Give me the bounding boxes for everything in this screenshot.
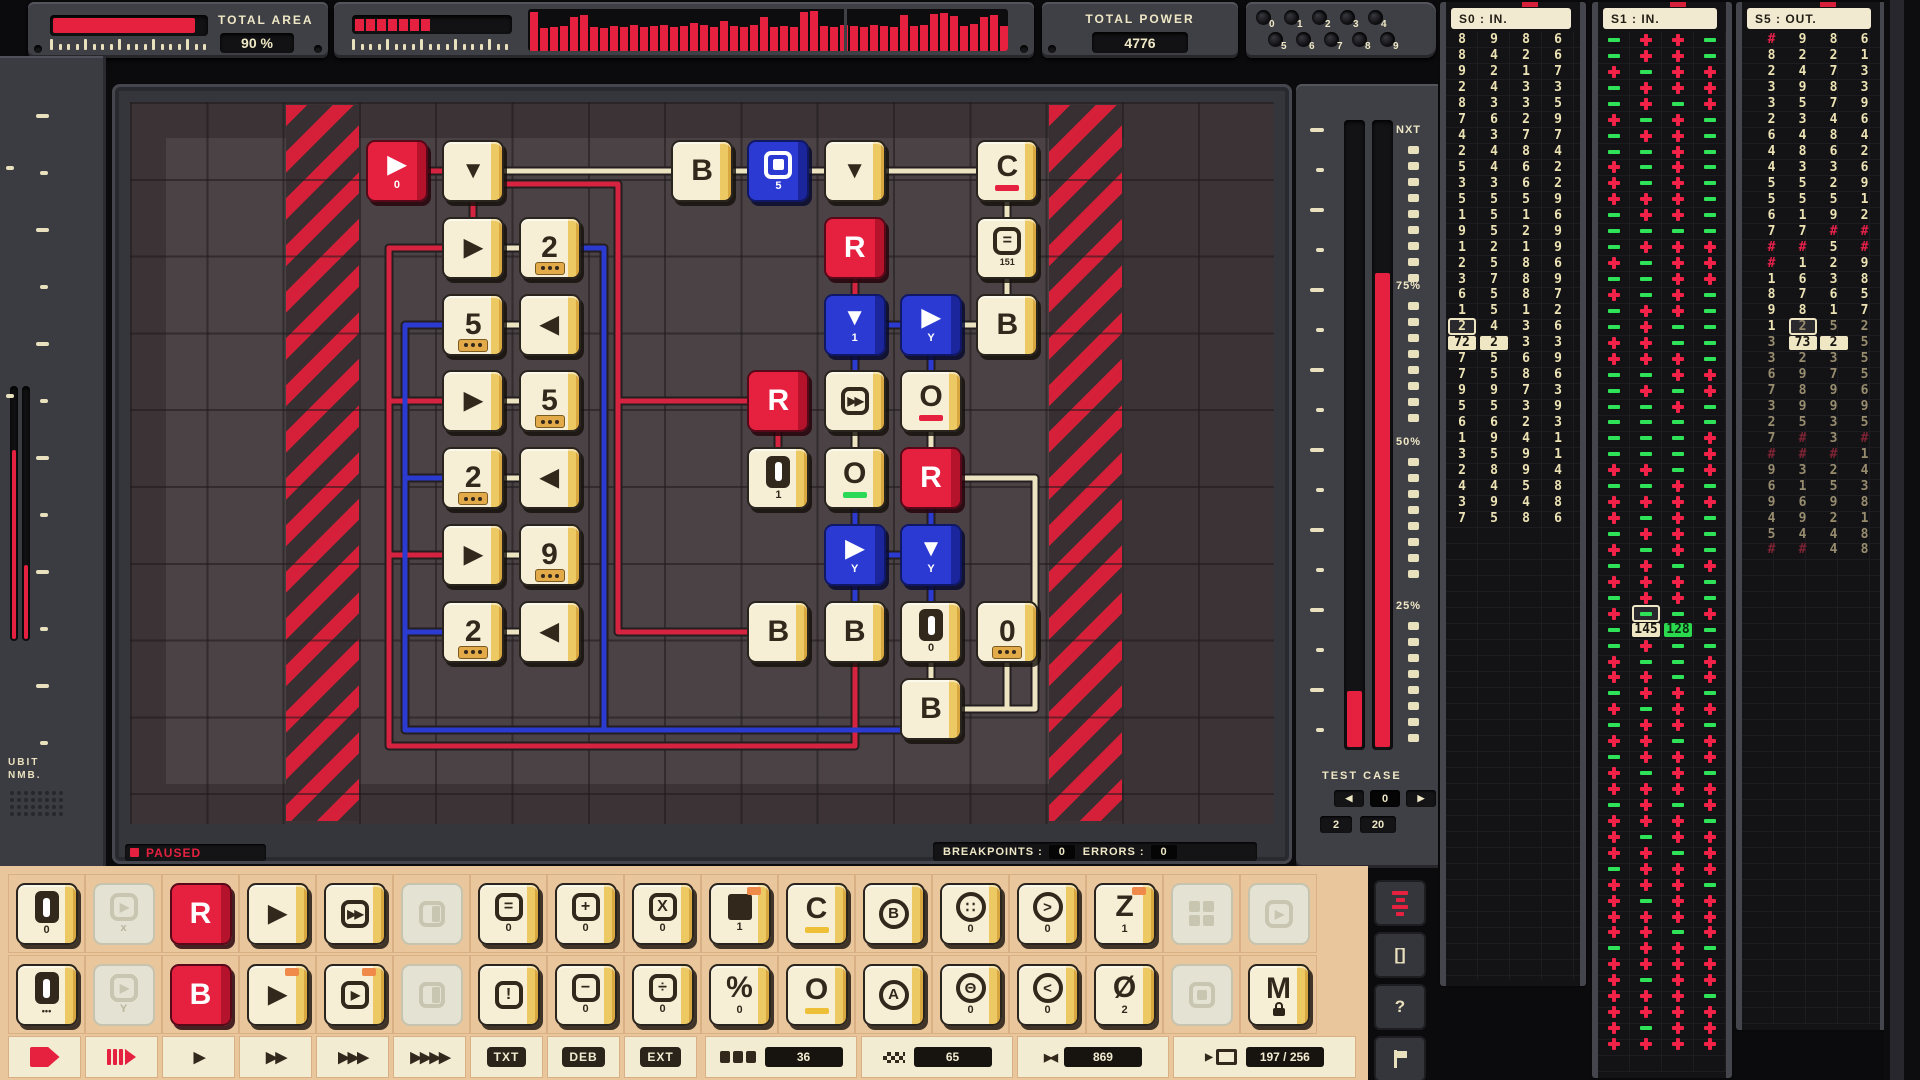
panel-cell: 7: [1510, 383, 1542, 398]
panel-digit: 3: [1522, 319, 1530, 334]
board-tile[interactable]: 1: [747, 447, 809, 509]
plus-symbol: [1703, 830, 1717, 844]
panel-digit: 3: [1458, 495, 1466, 510]
dot: [38, 798, 42, 802]
panel-cell: 6: [1787, 495, 1818, 510]
board-tile[interactable]: 2: [442, 601, 504, 663]
board-tile[interactable]: ▶: [442, 524, 504, 586]
palette-tile[interactable]: M: [1248, 964, 1310, 1026]
panel-digit: 3: [1768, 399, 1776, 414]
gauge-tick: [463, 44, 466, 50]
panel-digit: 7: [1458, 367, 1466, 382]
play-speed-3-button[interactable]: ▶▶▶: [316, 1036, 389, 1078]
gauge-tick: [505, 44, 508, 50]
panel-cell: 1: [1446, 240, 1478, 255]
histogram-bar: [590, 27, 598, 51]
panel-cell: 3: [1542, 335, 1574, 350]
panel-row: 4921: [1756, 510, 1880, 526]
panel-digit: 6: [1830, 144, 1838, 159]
panel-digit: 3: [1554, 80, 1562, 95]
panel-digit: #: [1861, 224, 1869, 239]
plus-symbol: [1671, 49, 1685, 63]
palette-tile[interactable]: X0: [632, 883, 694, 945]
board-tile[interactable]: ▼1: [824, 294, 886, 356]
panel-cell: [1598, 655, 1630, 669]
left-rail-tick: [36, 228, 49, 232]
gauge-column-tick: [1310, 368, 1324, 372]
help-button[interactable]: ?: [1374, 984, 1426, 1030]
dot: [31, 805, 35, 809]
histogram-bar: [750, 25, 758, 51]
panel-cell: 5: [1446, 399, 1478, 414]
board-tile[interactable]: R: [900, 447, 962, 509]
palette-tile[interactable]: B: [170, 964, 232, 1026]
palette-tile[interactable]: =0: [478, 883, 540, 945]
panel-cell: 6: [1542, 48, 1574, 63]
palette-tile[interactable]: ▶▶: [324, 883, 386, 945]
panel-cell: [1694, 129, 1726, 143]
panel-digit: 9: [1799, 399, 1807, 414]
panel-digit: 9: [1830, 495, 1838, 510]
glyph-%: %: [726, 973, 753, 1003]
panel-cell: 1: [1542, 447, 1574, 462]
minus-symbol: [1607, 400, 1621, 414]
panel-digit: 2: [1830, 256, 1838, 271]
plus-symbol: [1671, 192, 1685, 206]
tile-sublabel: Y: [851, 563, 858, 575]
palette-tile[interactable]: •••: [16, 964, 78, 1026]
plus-symbol: [1607, 352, 1621, 366]
glyph-B: B: [691, 156, 713, 186]
boxed-icon: +: [572, 893, 600, 921]
panel-digit: 5: [1830, 192, 1838, 207]
panel-row: 4862: [1756, 144, 1880, 160]
tile-palette: 0▶xR▶▶▶=0+0X01CB∷0>0Z1▶ •••▶YB▶▶!−0÷0%0O…: [0, 866, 1368, 1080]
panel-digit: 5: [1830, 479, 1838, 494]
board-tile[interactable]: 2: [442, 447, 504, 509]
palette-tile[interactable]: 1: [709, 883, 771, 945]
step-icon: [107, 1049, 136, 1065]
plus-symbol: [1607, 176, 1621, 190]
panel-s0-content: 8986842692172433833576294377248454623362…: [1446, 32, 1580, 980]
plus-symbol: [1671, 750, 1685, 764]
board-tile[interactable]: B: [976, 294, 1038, 356]
panel-cell: [1662, 814, 1694, 828]
panel-digit: 5: [1799, 192, 1807, 207]
board-tile[interactable]: ◀: [519, 447, 581, 509]
glyph-M: M: [1266, 974, 1291, 1004]
panel-digit: 4: [1522, 495, 1530, 510]
histogram-bar: [860, 27, 868, 51]
wire-priority-button[interactable]: [1374, 880, 1426, 926]
panel-cell: [1662, 400, 1694, 414]
panel-cell: 3: [1818, 415, 1849, 430]
deb-button[interactable]: DEB: [547, 1036, 620, 1078]
plus-symbol: [1639, 97, 1653, 111]
panel-cell: [1662, 81, 1694, 95]
board-tile[interactable]: ▼: [442, 140, 504, 202]
panel-cell: 6: [1542, 511, 1574, 526]
panel-cell: [1630, 878, 1662, 892]
board-tile[interactable]: B: [824, 601, 886, 663]
panel-digit: 1: [1522, 240, 1530, 255]
panel-digit: 9: [1458, 224, 1466, 239]
left-rail-dash: [6, 394, 14, 398]
panel-cell: [1662, 49, 1694, 63]
panel-row: [1598, 733, 1726, 749]
errors-label: ERRORS :: [1083, 846, 1145, 858]
minus-symbol: [1703, 814, 1717, 828]
panel-cell: [1598, 973, 1630, 987]
panel-digit: 5: [1861, 335, 1869, 350]
palette-tile[interactable]: C: [786, 883, 848, 945]
panel-row: [1598, 940, 1726, 956]
gauge-square: [1408, 686, 1419, 694]
gauge-tick: [480, 44, 483, 50]
board-tile[interactable]: ▼: [824, 140, 886, 202]
palette-tile[interactable]: Z1: [1094, 883, 1156, 945]
minus-symbol: [1703, 33, 1717, 47]
panel-cell: 1: [1787, 479, 1818, 494]
panel-cell: 5: [1787, 176, 1818, 191]
panel-cell: 4: [1756, 160, 1787, 175]
play-speed-1-button[interactable]: ▶: [162, 1036, 235, 1078]
gauge-square: [1408, 194, 1419, 202]
left-rail-tick: [40, 627, 48, 631]
panel-cell: [1662, 272, 1694, 286]
panel-cell: [1630, 702, 1662, 716]
ext-button[interactable]: EXT: [624, 1036, 697, 1078]
panel-digit: #: [1768, 240, 1776, 255]
palette-tile[interactable]: Θ0: [940, 964, 1002, 1026]
gauge-square: [1408, 414, 1419, 422]
panel-cell: #: [1787, 542, 1818, 557]
panel-digit: 5: [1458, 192, 1466, 207]
panel-digit: 128: [1666, 622, 1689, 637]
panel-digit: 8: [1522, 32, 1530, 47]
panel-digit: #: [1799, 240, 1807, 255]
play-icon: ▶: [194, 1048, 204, 1066]
play-speed-2-button[interactable]: ▶▶: [239, 1036, 312, 1078]
panel-cell: [1662, 479, 1694, 493]
panel-cell: [1630, 495, 1662, 509]
board-tile[interactable]: 5: [747, 140, 809, 202]
board-tile[interactable]: ▶: [442, 370, 504, 432]
histogram-bar: [670, 27, 678, 51]
board-tile[interactable]: ▼Y: [900, 524, 962, 586]
paused-indicator: PAUSED: [125, 844, 266, 861]
histogram-bar: [820, 26, 828, 51]
board-tile[interactable]: =151: [976, 217, 1038, 279]
minus-symbol: [1671, 97, 1685, 111]
left-rail-tick: [36, 684, 49, 688]
palette-tile[interactable]: A: [863, 964, 925, 1026]
panel-digit: 3: [1490, 128, 1498, 143]
board-tile[interactable]: O: [824, 447, 886, 509]
panel-digit: 1: [1799, 479, 1807, 494]
panel-digit: 4: [1830, 527, 1838, 542]
panel-cell: 3: [1787, 160, 1818, 175]
panel-digit: 5: [1861, 287, 1869, 302]
panel-s5-title: S5 : OUT.: [1747, 8, 1871, 29]
panel-cell: 5: [1542, 96, 1574, 111]
test-case-next-button[interactable]: ▶: [1406, 790, 1436, 807]
panel-cell: #: [1756, 32, 1787, 47]
palette-tile[interactable]: <0: [1017, 964, 1079, 1026]
board-tile[interactable]: R: [824, 217, 886, 279]
board-tile[interactable]: B: [900, 678, 962, 740]
panel-row: [1598, 877, 1726, 893]
panel-row: 77##: [1756, 223, 1880, 239]
board-tile[interactable]: ▶: [442, 217, 504, 279]
mini-gauge-ticks: [352, 40, 512, 54]
palette-tile[interactable]: −0: [555, 964, 617, 1026]
board-tile[interactable]: ▶0: [366, 140, 428, 202]
panel-cell: [1630, 750, 1662, 764]
plus-symbol: [1703, 670, 1717, 684]
palette-tile[interactable]: R: [170, 883, 232, 945]
minus-symbol: [1607, 272, 1621, 286]
palette-tile[interactable]: ▶: [247, 964, 309, 1026]
panel-cell: [1694, 925, 1726, 939]
panel-cell: 7: [1818, 64, 1849, 79]
panel-row: [1598, 845, 1726, 861]
panel-row: 6975: [1756, 367, 1880, 383]
panel-digit: 3: [1490, 96, 1498, 111]
plus-symbol: [1671, 957, 1685, 971]
panel-digit: 5: [1458, 399, 1466, 414]
minus-symbol: [1607, 431, 1621, 445]
panel-cell: [1694, 1021, 1726, 1035]
palette-tile[interactable]: +0: [555, 883, 617, 945]
panel-cell: [1694, 511, 1726, 525]
board-tile[interactable]: 2: [519, 217, 581, 279]
panel-cell: [1662, 607, 1694, 621]
panel-digit: 3: [1768, 96, 1776, 111]
palette-tile[interactable]: >0: [1017, 883, 1079, 945]
board-tile[interactable]: B: [747, 601, 809, 663]
panel-digit: 6: [1554, 511, 1562, 526]
palette-tile[interactable]: 0: [16, 883, 78, 945]
histogram-bar: [550, 27, 558, 51]
panel-cell: [1694, 1037, 1726, 1051]
stop-icon: [30, 1047, 60, 1067]
plus-symbol: [1671, 400, 1685, 414]
value-box-green: 128: [1664, 623, 1692, 637]
panel-cell: [1598, 702, 1630, 716]
test-case-prev-button[interactable]: ◀: [1334, 790, 1364, 807]
panel-digit: 8: [1830, 80, 1838, 95]
panel-digit: 8: [1799, 144, 1807, 159]
panel-cell: 2: [1756, 415, 1787, 430]
board-tile[interactable]: ▶▶: [824, 370, 886, 432]
panel-cell: 9: [1787, 32, 1818, 47]
plus-symbol: [1607, 830, 1621, 844]
palette-tile[interactable]: B: [863, 883, 925, 945]
panel-cell: 8: [1510, 32, 1542, 47]
histogram-bar: [800, 12, 808, 51]
palette-tile[interactable]: ▶: [324, 964, 386, 1026]
panel-digit: 9: [1768, 463, 1776, 478]
gauge-tick: [59, 44, 62, 50]
plus-symbol: [1607, 655, 1621, 669]
gauge-square: [1408, 274, 1419, 282]
toolbar-badge: DEB: [562, 1047, 604, 1067]
panel-cell: 1: [1787, 256, 1818, 271]
board-tile[interactable]: ▶Y: [824, 524, 886, 586]
plus-symbol: [1671, 81, 1685, 95]
test-case-value: 0: [1370, 790, 1400, 807]
panel-row: [1598, 861, 1726, 877]
tile-sublabel: 0: [1044, 923, 1050, 935]
left-rail-tick: [40, 513, 48, 517]
panel-cell: 2: [1510, 415, 1542, 430]
panel-cell: [1662, 256, 1694, 270]
play-speed-4-button[interactable]: ▶▶▶▶: [393, 1036, 466, 1078]
palette-tile[interactable]: !: [478, 964, 540, 1026]
board-tile[interactable]: 9: [519, 524, 581, 586]
panel-digit: 5: [1490, 399, 1498, 414]
palette-cell: M: [1240, 955, 1317, 1034]
flag-button[interactable]: [1374, 1036, 1426, 1080]
panel-cell: 6: [1446, 287, 1478, 302]
panel-digit: 6: [1768, 367, 1776, 382]
board-tile[interactable]: 5: [519, 370, 581, 432]
panel-cell: 9: [1542, 272, 1574, 287]
gauge-square: [1408, 302, 1419, 310]
histogram-bar: [570, 17, 578, 51]
panel-digit: 3: [1768, 335, 1776, 350]
board-tile[interactable]: R: [747, 370, 809, 432]
minus-symbol: [1671, 798, 1685, 812]
tile-sublabel: 0: [659, 922, 665, 934]
panel-cell: 4: [1818, 112, 1849, 127]
panel-cell: 3: [1478, 176, 1510, 191]
panel-digit: 8: [1799, 303, 1807, 318]
board-tile[interactable]: C: [976, 140, 1038, 202]
panel-cell: 5: [1849, 351, 1880, 366]
panel-cell: 8: [1818, 128, 1849, 143]
dots-badge: [458, 492, 488, 505]
panel-cell: 2: [1818, 256, 1849, 271]
stop-button[interactable]: [8, 1036, 81, 1078]
minus-symbol: [1607, 718, 1621, 732]
board-tile[interactable]: ▶Y: [900, 294, 962, 356]
board-grid[interactable]: ▶0▼B5▼C▶2R=1515◀▼1▶YB▶5R▶▶O2◀1OR▶9▶Y▼Y2◀…: [130, 102, 1274, 824]
board-tile[interactable]: 0: [900, 601, 962, 663]
panel-cell: 6: [1510, 176, 1542, 191]
panel-digit: 7: [1768, 431, 1776, 446]
panel-cell: 7: [1478, 272, 1510, 287]
plus-symbol: [1607, 65, 1621, 79]
palette-tile[interactable]: O: [786, 964, 848, 1026]
plus-symbol: [1607, 1021, 1621, 1035]
mark-50: 50%: [1396, 436, 1421, 448]
minus-symbol: [1607, 559, 1621, 573]
panel-row: [1598, 1020, 1726, 1036]
test-case-box-2: 20: [1360, 816, 1396, 833]
panel-cell: [1662, 288, 1694, 302]
digit-label: 7: [1337, 41, 1343, 52]
panel-digit: 4: [1458, 479, 1466, 494]
tile-sublabel: 0: [967, 923, 973, 935]
panel-digit: 1: [1458, 431, 1466, 446]
panel-cell: [1630, 798, 1662, 812]
panel-cell: 5: [1478, 287, 1510, 302]
panel-cell: 5: [1849, 287, 1880, 302]
minus-symbol: [1607, 129, 1621, 143]
board-tile[interactable]: 0: [976, 601, 1038, 663]
panel-digit: 1: [1458, 240, 1466, 255]
palette-tile[interactable]: ▶: [247, 883, 309, 945]
panel-digit: 9: [1768, 495, 1776, 510]
panel-cell: 2: [1756, 64, 1787, 79]
panel-cell: [1694, 1005, 1726, 1019]
board-tile[interactable]: ◀: [519, 294, 581, 356]
txt-button[interactable]: TXT: [470, 1036, 543, 1078]
palette-tile[interactable]: ∷0: [940, 883, 1002, 945]
panel-cell: [1630, 240, 1662, 254]
panel-digit: 9: [1830, 383, 1838, 398]
palette-tile[interactable]: %0: [709, 964, 771, 1026]
panel-cell: 1: [1510, 303, 1542, 318]
board-tile[interactable]: ◀: [519, 601, 581, 663]
mini-gauge-segment: [410, 19, 419, 31]
panel-digit: 9: [1799, 32, 1807, 47]
board-tile[interactable]: B: [671, 140, 733, 202]
panel-cell: 5: [1478, 351, 1510, 366]
panel-digit: 2: [1458, 319, 1466, 334]
panel-cell: [1630, 1021, 1662, 1035]
panel-cell: [1662, 941, 1694, 955]
panel-digit: 7: [1554, 128, 1562, 143]
panel-digit: 2: [1458, 256, 1466, 271]
histogram-bar: [900, 15, 908, 51]
palette-tile[interactable]: Ø2: [1094, 964, 1156, 1026]
tile-sublabel: 0: [736, 1004, 742, 1016]
triangle-icon: ▶: [464, 542, 482, 568]
plus-symbol: [1639, 527, 1653, 541]
button-glyph: ?: [1395, 997, 1405, 1017]
panel-row: [1598, 160, 1726, 176]
panel-digit: 9: [1490, 495, 1498, 510]
panel-cell: 9: [1542, 399, 1574, 414]
panel-cell: [1630, 973, 1662, 987]
panel-digit: 4: [1768, 160, 1776, 175]
panel-row: [1598, 1004, 1726, 1020]
board-tile[interactable]: O: [900, 370, 962, 432]
panel-digit: 6: [1522, 351, 1530, 366]
panel-digit: 5: [1768, 192, 1776, 207]
panel-digit: 4: [1799, 527, 1807, 542]
brackets-button[interactable]: []: [1374, 932, 1426, 978]
panel-row: 5448: [1756, 526, 1880, 542]
panel-cell: [1630, 814, 1662, 828]
board-tile[interactable]: 5: [442, 294, 504, 356]
panel-cell: [1662, 559, 1694, 573]
plus-symbol: [1671, 878, 1685, 892]
panel-cell: 8: [1849, 542, 1880, 557]
panel-digit: 8: [1458, 96, 1466, 111]
panel-cell: 9: [1818, 208, 1849, 223]
panel-row: 6623: [1446, 415, 1580, 431]
plus-symbol: [1639, 910, 1653, 924]
palette-cell: =0: [470, 874, 547, 953]
panel-cell: 4: [1478, 144, 1510, 159]
gauge-column-tick: [1316, 568, 1324, 572]
step-button[interactable]: [85, 1036, 158, 1078]
palette-tile[interactable]: ÷0: [632, 964, 694, 1026]
